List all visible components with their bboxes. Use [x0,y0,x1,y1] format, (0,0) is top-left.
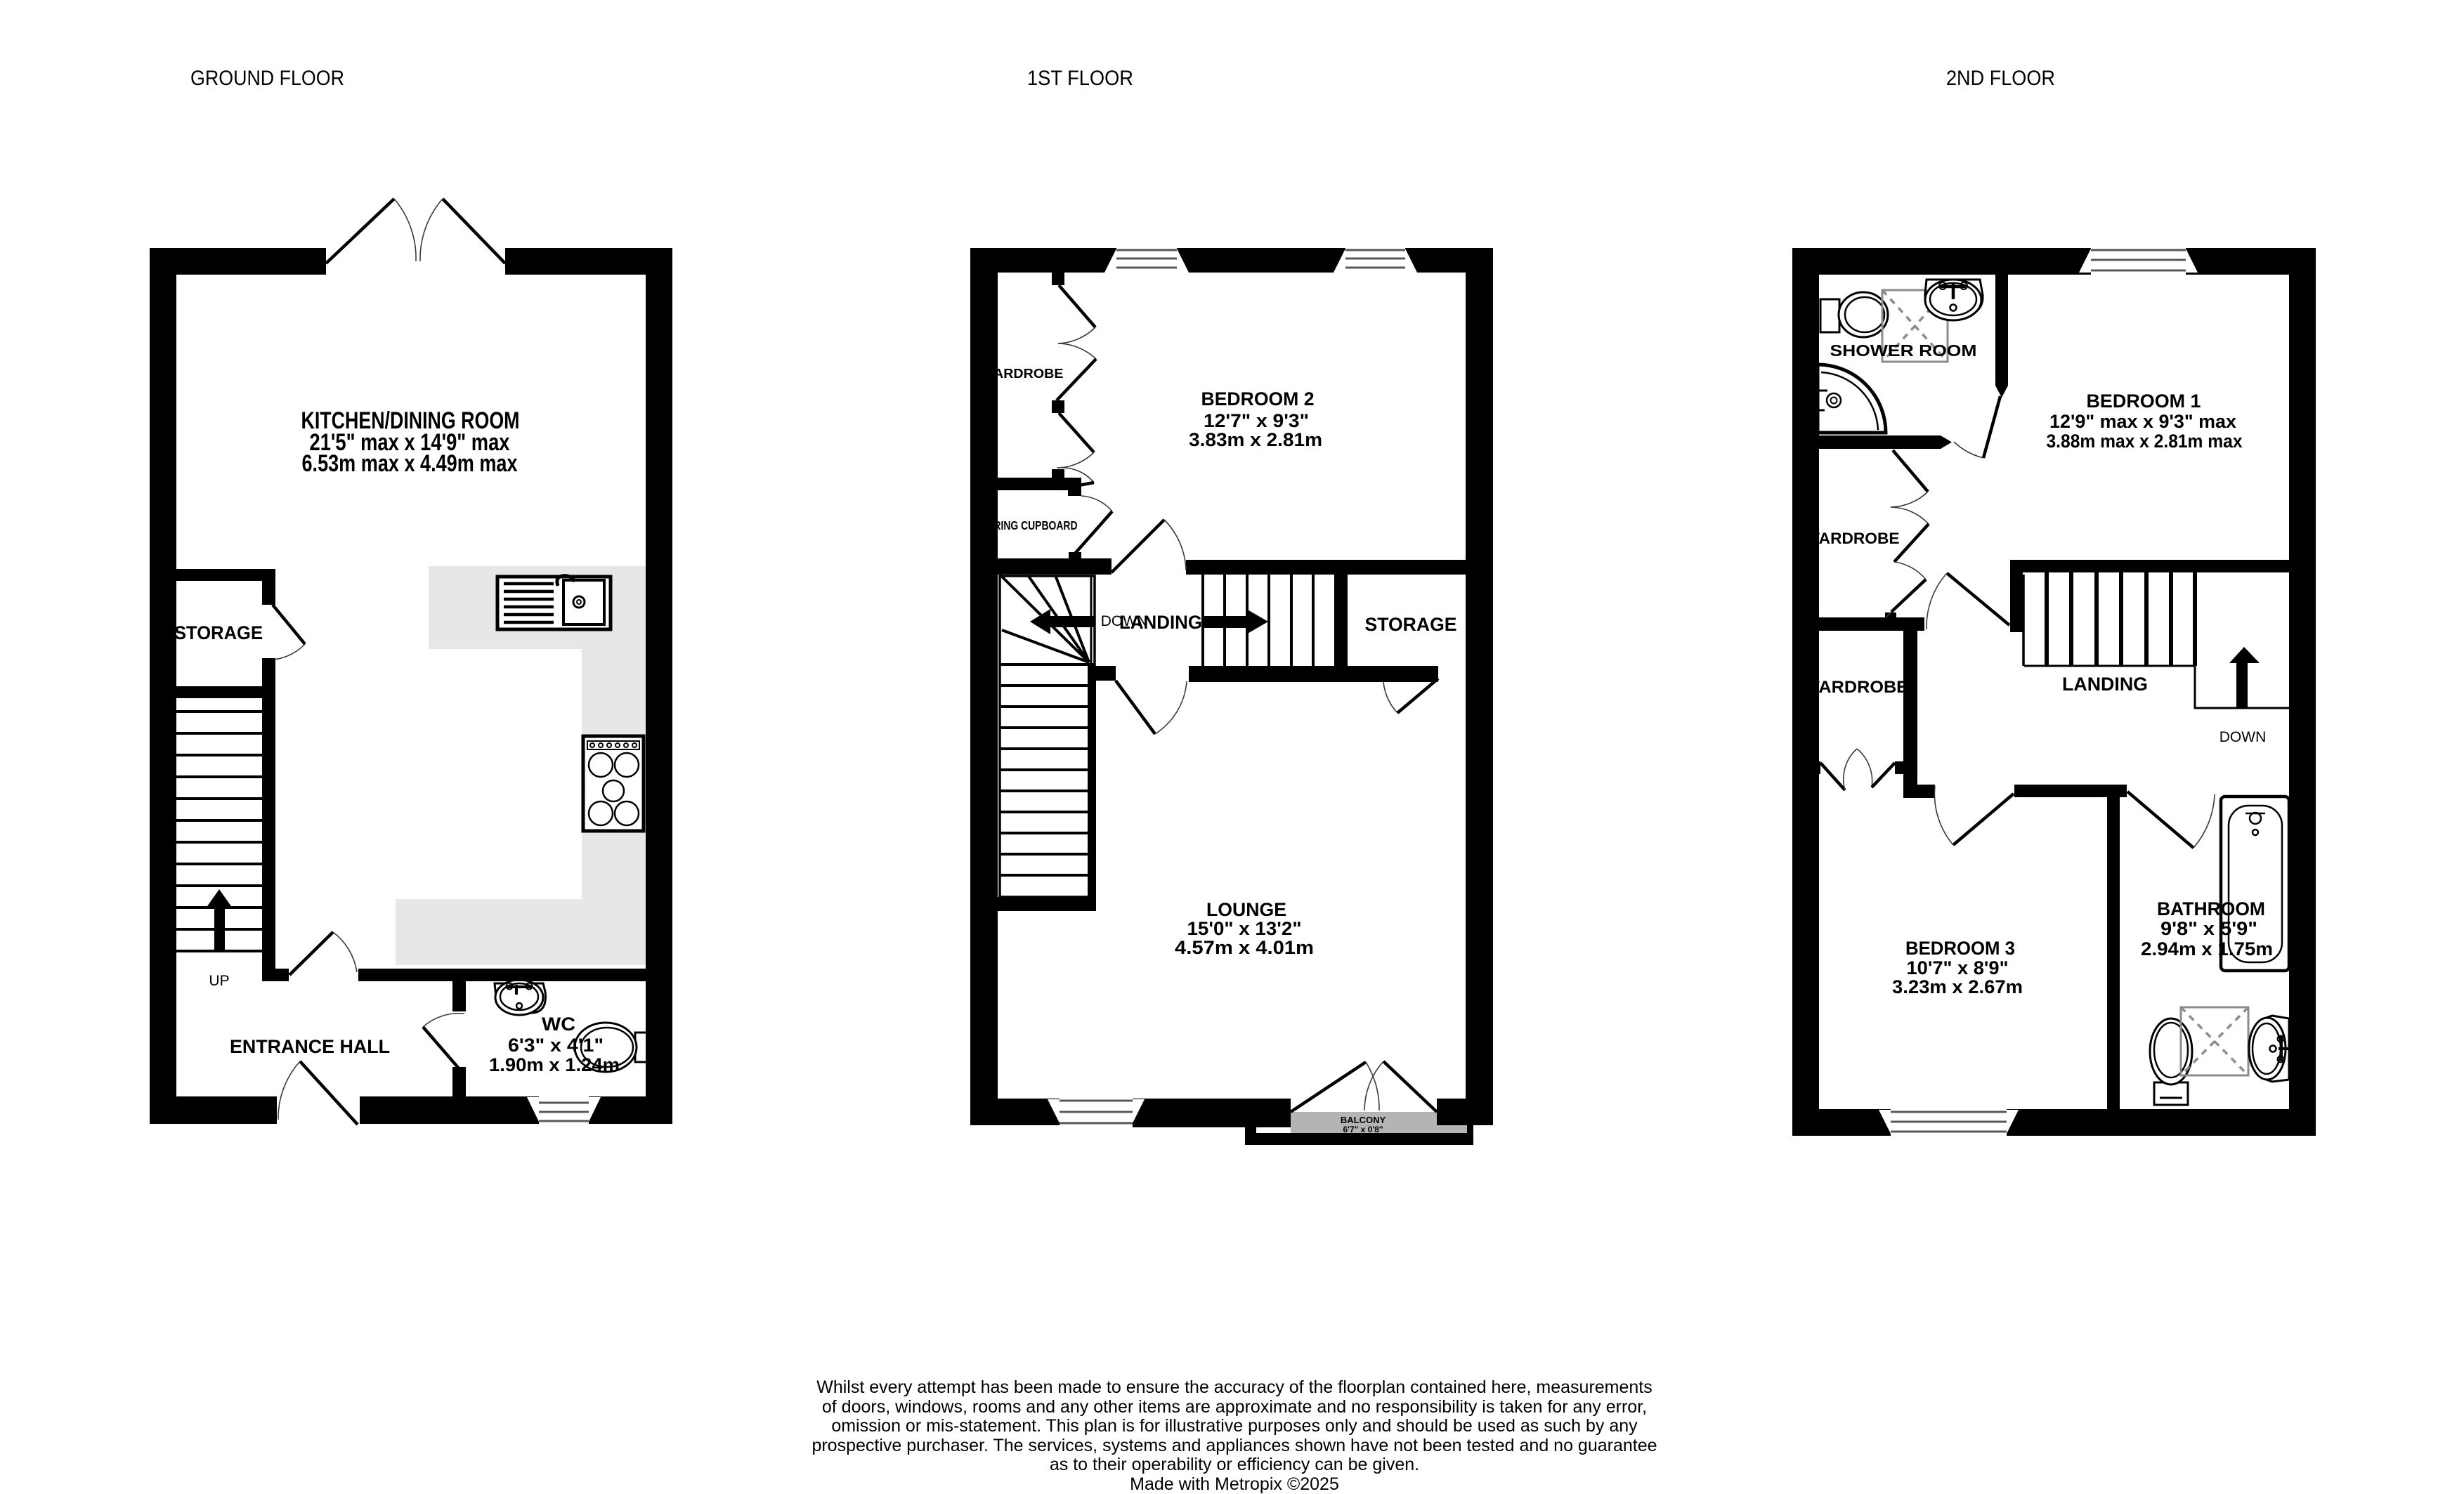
svg-text:6'7" x 0'8": 6'7" x 0'8" [1343,1125,1383,1134]
svg-text:UP: UP [209,973,229,989]
svg-text:AIRING CUPBOARD: AIRING CUPBOARD [984,518,1078,532]
svg-text:STORAGE: STORAGE [174,622,263,643]
svg-text:3.88m max x 2.81m max: 3.88m max x 2.81m max [2047,431,2243,452]
svg-text:omission or mis-statement. Thi: omission or mis-statement. This plan is … [831,1416,1638,1436]
svg-text:4.57m x 4.01m: 4.57m x 4.01m [1175,937,1314,958]
svg-text:BALCONY: BALCONY [1341,1115,1386,1125]
svg-text:STORAGE: STORAGE [1365,614,1457,635]
svg-text:SHOWER ROOM: SHOWER ROOM [1830,341,1977,360]
svg-text:BEDROOM 2: BEDROOM 2 [1201,388,1315,409]
svg-text:12'7" x 9'3": 12'7" x 9'3" [1204,410,1309,431]
svg-text:12'9" max x 9'3" max: 12'9" max x 9'3" max [2049,411,2236,432]
svg-text:2ND FLOOR: 2ND FLOOR [1946,67,2055,90]
svg-text:prospective purchaser. The ser: prospective purchaser. The services, sys… [811,1436,1657,1455]
svg-text:as to their operability or eff: as to their operability or efficiency ca… [1050,1455,1419,1474]
svg-text:15'0" x 13'2": 15'0" x 13'2" [1187,918,1302,939]
svg-text:3.23m x 2.67m: 3.23m x 2.67m [1892,976,2023,997]
svg-text:DOWN: DOWN [2219,729,2267,745]
svg-text:Made with Metropix ©2025: Made with Metropix ©2025 [1130,1474,1339,1494]
svg-text:10'7" x 8'9": 10'7" x 8'9" [1907,957,2009,978]
svg-text:BEDROOM 1: BEDROOM 1 [2087,391,2201,412]
svg-text:of doors, windows, rooms and a: of doors, windows, rooms and any other i… [822,1397,1647,1417]
svg-text:1.90m x 1.24m: 1.90m x 1.24m [489,1054,620,1075]
svg-text:2.94m x 1.75m: 2.94m x 1.75m [2141,938,2273,959]
svg-text:3.83m x 2.81m: 3.83m x 2.81m [1189,429,1322,450]
svg-text:BEDROOM 3: BEDROOM 3 [1905,938,2015,959]
svg-text:ENTRANCE HALL: ENTRANCE HALL [230,1036,390,1057]
svg-text:GROUND FLOOR: GROUND FLOOR [190,67,344,90]
svg-text:LOUNGE: LOUNGE [1206,899,1286,920]
svg-text:LANDING: LANDING [2062,674,2148,695]
svg-text:WC: WC [542,1014,575,1035]
svg-text:1ST FLOOR: 1ST FLOOR [1027,67,1133,90]
svg-text:Whilst every attempt has been: Whilst every attempt has been made to en… [816,1377,1653,1397]
svg-text:6'3" x 4'1": 6'3" x 4'1" [508,1035,604,1056]
svg-text:LANDING: LANDING [1119,612,1202,633]
svg-text:6.53m max x 4.49m max: 6.53m max x 4.49m max [302,450,518,477]
svg-text:9'8" x 5'9": 9'8" x 5'9" [2160,918,2257,939]
svg-text:BATHROOM: BATHROOM [2157,898,2265,919]
